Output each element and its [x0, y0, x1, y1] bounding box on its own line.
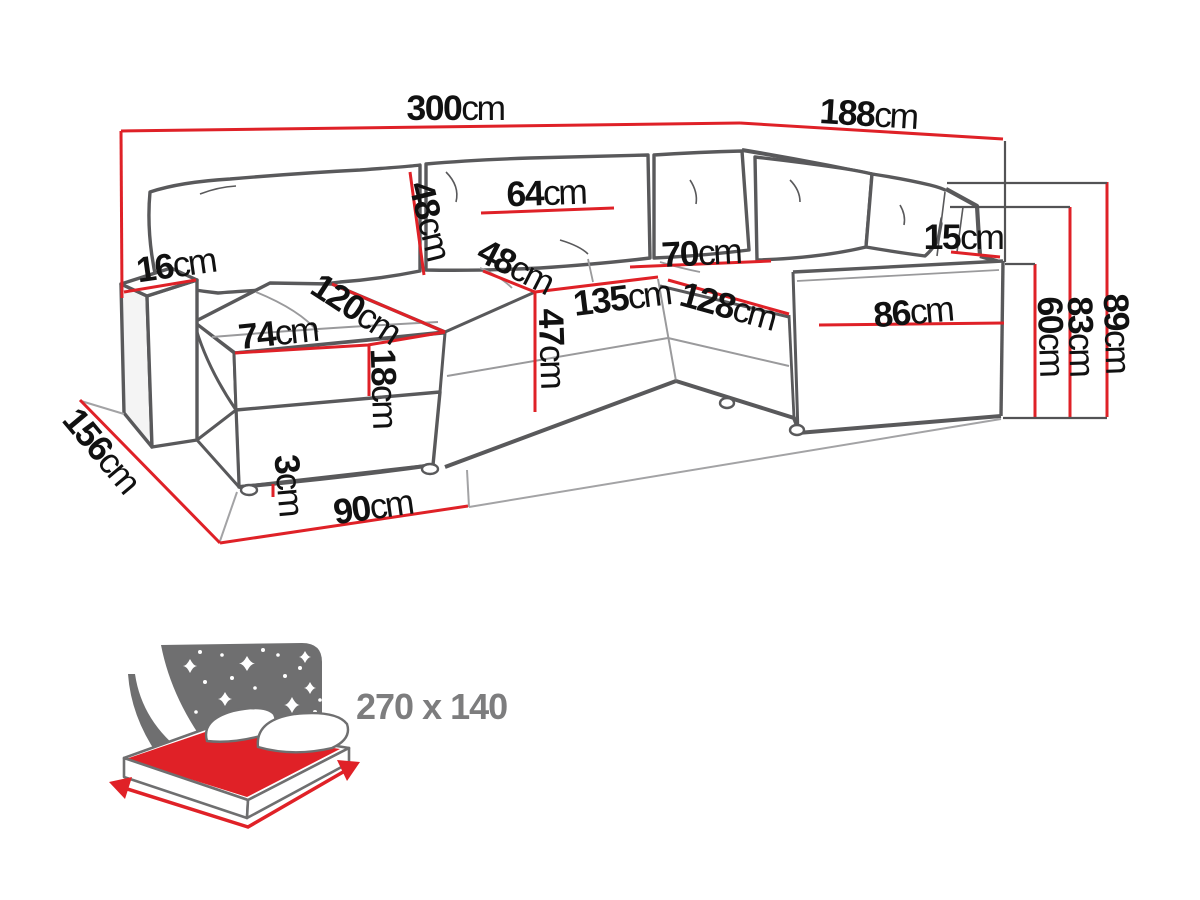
svg-text:89cm: 89cm — [1095, 293, 1138, 374]
svg-text:270 x 140: 270 x 140 — [356, 686, 507, 727]
svg-text:74cm: 74cm — [236, 309, 319, 357]
svg-text:18cm: 18cm — [362, 348, 405, 429]
svg-text:47cm: 47cm — [530, 308, 573, 389]
svg-text:70cm: 70cm — [660, 231, 742, 275]
svg-text:64cm: 64cm — [506, 172, 587, 215]
svg-text:3cm: 3cm — [266, 453, 311, 518]
svg-text:188cm: 188cm — [818, 91, 918, 137]
svg-text:86cm: 86cm — [872, 289, 955, 336]
svg-text:15cm: 15cm — [924, 217, 1004, 257]
svg-text:83cm: 83cm — [1059, 296, 1102, 377]
svg-text:300cm: 300cm — [406, 88, 504, 128]
svg-text:90cm: 90cm — [331, 482, 416, 533]
